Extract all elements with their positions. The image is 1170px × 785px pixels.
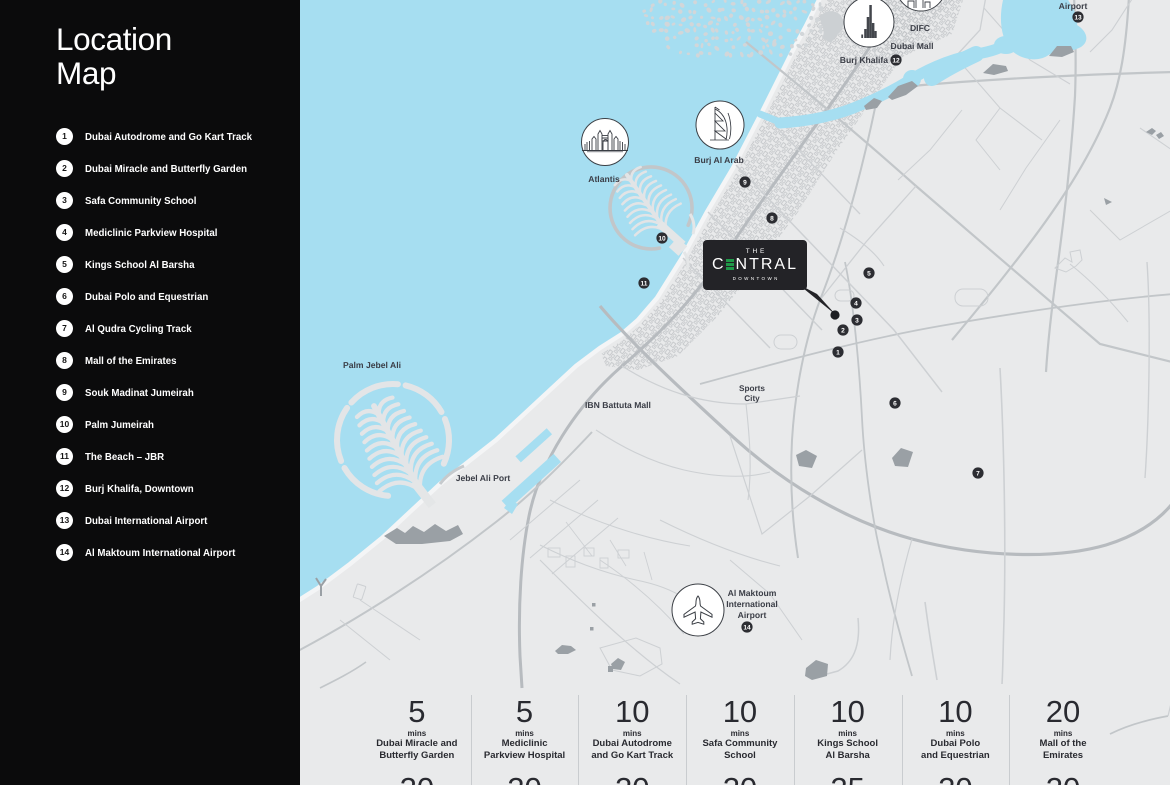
svg-text:Palm Jebel Ali: Palm Jebel Ali [343,360,401,370]
svg-text:9: 9 [743,180,747,187]
svg-text:1: 1 [836,350,840,357]
svg-text:6: 6 [893,401,897,408]
svg-text:IBN Battuta Mall: IBN Battuta Mall [585,400,651,410]
svg-text:Burj Al Arab: Burj Al Arab [694,155,744,165]
svg-text:2: 2 [841,328,845,335]
svg-text:13: 13 [1074,15,1082,22]
svg-text:5: 5 [867,271,871,278]
svg-text:Burj Khalifa: Burj Khalifa [840,55,888,65]
svg-text:4: 4 [854,301,858,308]
svg-text:Airport: Airport [1059,1,1088,11]
svg-text:10: 10 [658,236,666,243]
svg-text:12: 12 [892,58,900,65]
svg-text:Airport: Airport [738,610,767,620]
svg-text:Sports: Sports [739,384,765,393]
svg-text:11: 11 [641,281,648,288]
svg-text:Atlantis: Atlantis [588,174,620,184]
svg-text:3: 3 [855,318,859,325]
svg-text:8: 8 [770,216,774,223]
svg-text:Al Maktoum: Al Maktoum [728,588,777,598]
svg-text:Dubai Mall: Dubai Mall [891,41,934,51]
svg-text:City: City [744,394,760,403]
svg-text:DIFC: DIFC [910,23,930,33]
svg-text:14: 14 [743,625,751,632]
svg-text:International: International [726,599,778,609]
svg-text:Jebel Ali Port: Jebel Ali Port [456,473,511,483]
svg-text:7: 7 [976,471,980,478]
